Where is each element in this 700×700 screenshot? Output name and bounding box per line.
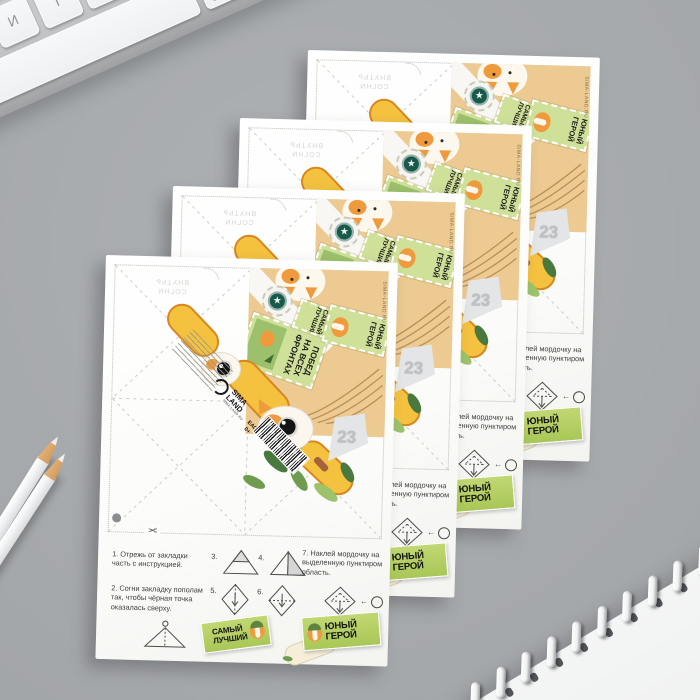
step-2-diagram <box>142 618 189 649</box>
spiral-coil <box>495 667 505 698</box>
flag-icon <box>264 352 274 364</box>
brand-url-vertical: SIMA-LAND.RU <box>582 76 589 118</box>
arrow-icon: ← <box>562 392 570 403</box>
spiral-coil <box>597 606 607 637</box>
spiral-coil <box>571 621 581 652</box>
spiral-coil <box>672 560 682 591</box>
fold-inside-hint: СОГНИ ВНУТРЬ <box>289 139 323 158</box>
spiral-coil <box>546 636 556 667</box>
instructions-area: 1. Отрежь от закладки часть с инструкцие… <box>95 537 390 667</box>
spiral-coil <box>622 591 632 622</box>
number-23: 23 <box>471 290 490 310</box>
desk-scene: ВА чСсVМИТ ⌘command⌘commandoption СОГНИ … <box>0 0 700 700</box>
brand-url-vertical: SIMA-LAND.RU <box>514 144 521 186</box>
spiral-coil <box>647 576 657 607</box>
fold-inside-hint: СОГНИ ВНУТРЬ <box>357 71 391 90</box>
arrow-icon: ← <box>427 528 435 539</box>
fold-inside-hint: СОГНИ ВНУТРЬ <box>155 276 189 295</box>
leaf-shape <box>282 655 293 662</box>
corgi-face-icon <box>329 315 350 339</box>
arrow-icon: ← <box>494 460 502 471</box>
sticker-samyi-luchshiy: САМЫЙ ЛУЧШИЙ <box>200 614 271 654</box>
step-2-text: 2. Согни закладку пополам так, чтобы чёр… <box>111 583 220 614</box>
keyboard-key: ⌘command <box>192 0 253 10</box>
stamp-hero: ЮНЫЙ ГЕРОЙ <box>523 99 590 152</box>
step-3-number: 3. <box>211 552 218 562</box>
brand-url-vertical: SIMA-LAND.RU <box>447 212 454 254</box>
star-icon: ★ <box>340 227 349 237</box>
corgi-face-icon <box>531 110 552 134</box>
corgi-sticker-icon <box>307 625 323 641</box>
corgi-face-icon <box>396 246 417 270</box>
brand-url-vertical: SIMA-LAND.RU <box>380 281 387 323</box>
corgi-face-icon <box>463 178 484 202</box>
step-5-number: 5. <box>210 586 217 596</box>
stamp-hero: ЮНЫЙ ГЕРОЙ <box>388 235 455 288</box>
postal-wavy-lines <box>306 361 384 425</box>
spiral-coil <box>521 652 531 683</box>
step-3-diagram <box>222 548 261 576</box>
number-23: 23 <box>337 427 356 447</box>
star-icon: ★ <box>475 91 484 101</box>
sticker-yunyi-geroy: ЮНЫЙ ГЕРОЙ <box>301 611 381 651</box>
arrow-icon: ← <box>360 597 368 608</box>
step-6-diagram <box>267 583 298 618</box>
glue-dot-circle <box>371 596 383 608</box>
corgi-sticker-icon <box>249 623 266 640</box>
step-5-diagram <box>220 582 251 617</box>
step-4-number: 4. <box>258 553 265 563</box>
number-23: 23 <box>539 222 558 242</box>
star-icon: ★ <box>273 296 282 306</box>
spiral-coil <box>470 682 480 700</box>
glue-dot-circle <box>438 527 450 539</box>
bookmark-craft-sheet: СОГНИ ВНУТРЬ ★ ПОБЕД НА ВСЕХ ФРОНТАХ <box>95 255 397 667</box>
star-icon: ★ <box>407 159 416 169</box>
step-7-text: 7. Наклей мордочку на выделенную пунктир… <box>302 548 389 579</box>
glue-dot-circle <box>573 391 585 403</box>
scissors-icon: ✂ <box>145 524 161 537</box>
fold-inside-hint: СОГНИ ВНУТРЬ <box>222 207 256 226</box>
corgi-icon <box>258 329 277 349</box>
number-23: 23 <box>404 358 423 378</box>
logo-ring-icon <box>212 378 230 396</box>
step-6-number: 6. <box>257 587 264 597</box>
stamp-hero: ЮНЫЙ ГЕРОЙ <box>321 304 388 357</box>
stamp-hero: ЮНЫЙ ГЕРОЙ <box>455 167 522 220</box>
step-1-text: 1. Отрежь от закладки часть с инструкцие… <box>112 549 214 571</box>
glue-dot-circle <box>505 459 517 471</box>
